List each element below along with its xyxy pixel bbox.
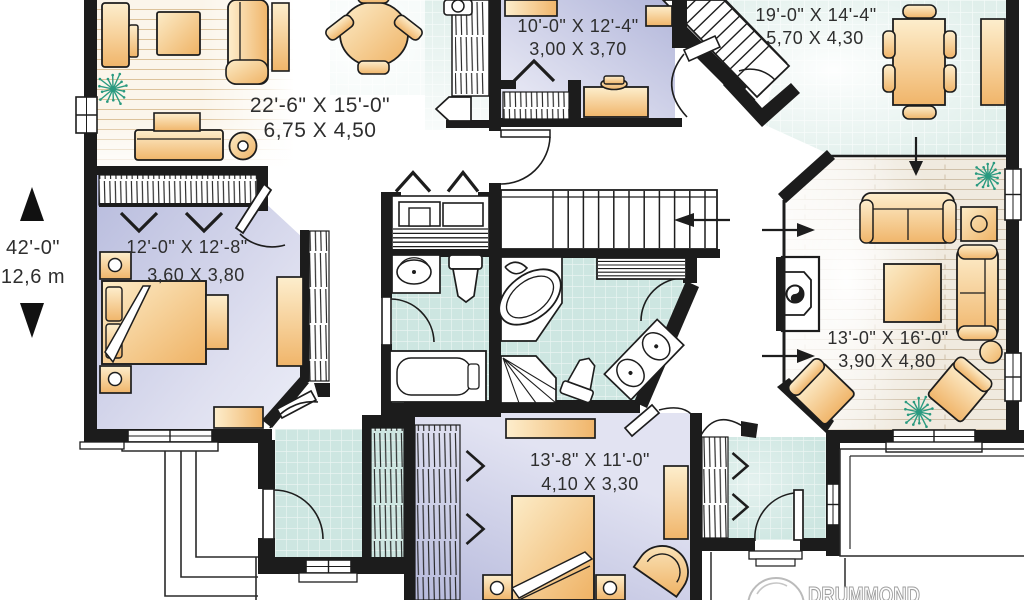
svg-text:3,60 X 3,80: 3,60 X 3,80 — [147, 265, 245, 285]
svg-text:12'-0" X 12'-8": 12'-0" X 12'-8" — [126, 237, 247, 257]
svg-text:3,00 X 3,70: 3,00 X 3,70 — [529, 39, 627, 59]
svg-text:12,6 m: 12,6 m — [1, 266, 65, 288]
svg-text:4,10 X 3,30: 4,10 X 3,30 — [541, 474, 639, 494]
svg-text:10'-0" X 12'-4": 10'-0" X 12'-4" — [517, 16, 638, 36]
svg-text:5,70 X 4,30: 5,70 X 4,30 — [766, 28, 864, 48]
svg-text:3,90 X 4,80: 3,90 X 4,80 — [838, 351, 936, 371]
svg-text:13'-8" X 11'-0": 13'-8" X 11'-0" — [530, 450, 650, 470]
svg-text:DRUMMOND: DRUMMOND — [808, 582, 920, 600]
svg-text:13'-0" X 16'-0": 13'-0" X 16'-0" — [827, 328, 948, 348]
svg-text:42'-0": 42'-0" — [6, 237, 60, 259]
svg-text:6,75 X 4,50: 6,75 X 4,50 — [264, 119, 377, 142]
svg-text:19'-0" X 14'-4": 19'-0" X 14'-4" — [755, 5, 876, 25]
svg-text:22'-6" X 15'-0": 22'-6" X 15'-0" — [250, 94, 390, 117]
